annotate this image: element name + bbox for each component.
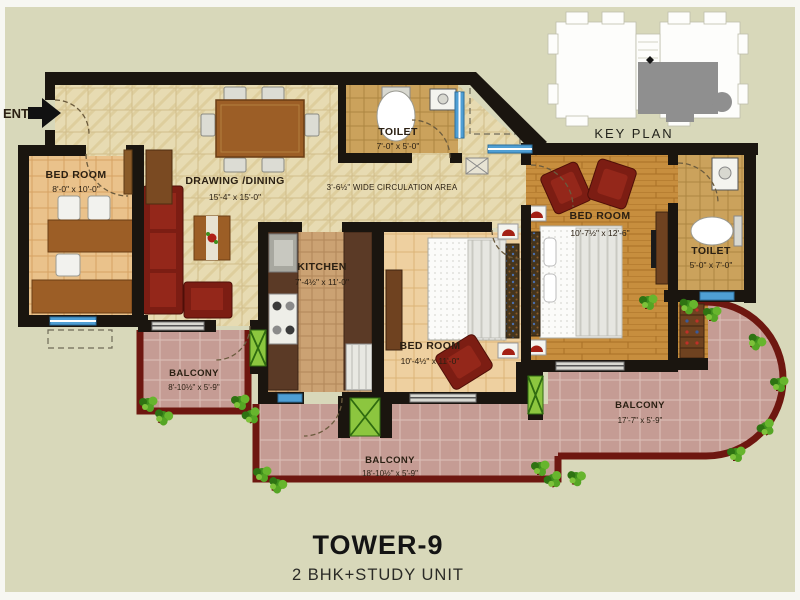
master-bedroom-dims: 10'-7½" x 12'-6" [570, 228, 629, 238]
planter-box-left [250, 330, 266, 366]
kitchen-label: KITCHEN [297, 261, 346, 273]
key-plan-highlighted-unit [638, 62, 732, 122]
console-cabinet [146, 150, 172, 204]
balcony-bottom-label: BALCONY [365, 455, 415, 466]
study-bedroom-label: BED ROOM [46, 169, 107, 181]
middle-bedroom-label: BED ROOM [400, 340, 461, 352]
floor-plan-canvas: KEY PLAN [0, 0, 800, 600]
toilet-top-dims: 7'-0" x 5'-0" [377, 141, 420, 151]
fridge [346, 344, 372, 390]
kitchen-dims: 7'-4½" x 11'-0" [295, 277, 349, 287]
balcony-right-label: BALCONY [615, 400, 665, 411]
unit-type-subtitle: 2 BHK+STUDY UNIT [292, 566, 464, 584]
middle-bedroom-dims: 10'-4½" x 11'-0" [401, 356, 460, 366]
balcony-left-label: BALCONY [169, 368, 219, 379]
stove [269, 294, 297, 344]
key-plan-label: KEY PLAN [594, 126, 673, 141]
title-block: TOWER-9 2 BHK+STUDY UNIT [292, 530, 464, 584]
balcony-right-dims: 17'-7" x 5'-9" [618, 416, 663, 425]
toilet-right-dims: 5'-0" x 7'-0" [690, 260, 733, 270]
circulation-label: 3'-6½" WIDE CIRCULATION AREA [327, 183, 458, 192]
entrance-label: ENT. [3, 106, 31, 121]
master-bedroom-label: BED ROOM [570, 210, 631, 222]
middle-bedroom-wardrobe [386, 270, 402, 350]
planter-box-bottom [350, 398, 380, 436]
drawing-dining-label: DRAWING /DINING [185, 175, 284, 187]
wc-right [691, 217, 733, 245]
drawing-dining-dims: 15'-4" x 15'-0" [209, 192, 261, 202]
window-toilet-right [700, 292, 734, 300]
toilet-right-label: TOILET [691, 245, 731, 257]
balcony-left-dims: 8'-10½" x 5'-9" [168, 383, 220, 392]
tower-title: TOWER-9 [312, 530, 443, 560]
floor-plan-image: KEY PLAN [0, 0, 800, 600]
toilet-top-label: TOILET [378, 126, 418, 138]
study-door-leaf [124, 150, 132, 194]
shaft-box [466, 158, 488, 174]
balcony-bottom-dims: 18'-10½" x 5'-9" [362, 469, 418, 478]
planter-box-right [528, 376, 543, 414]
window-kitchen [278, 394, 302, 402]
study-bedroom-dims: 8'-0" x 10'-0" [52, 184, 100, 194]
center-table [194, 216, 230, 260]
